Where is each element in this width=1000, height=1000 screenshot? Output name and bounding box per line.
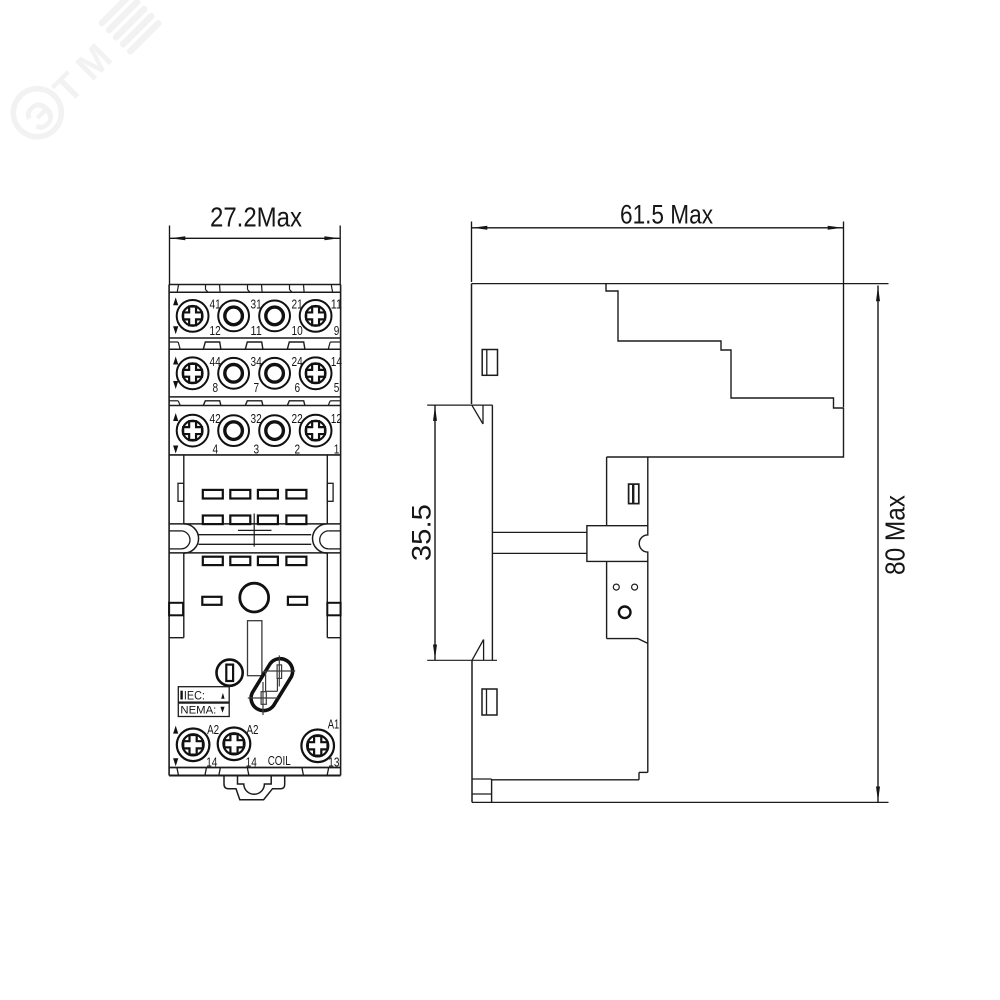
- svg-text:7: 7: [254, 380, 260, 395]
- svg-text:35.5: 35.5: [407, 504, 437, 561]
- svg-text:12: 12: [210, 323, 221, 338]
- svg-text:24: 24: [292, 354, 303, 369]
- svg-text:32: 32: [251, 411, 262, 426]
- svg-text:14: 14: [331, 354, 342, 369]
- svg-text:A1: A1: [328, 718, 340, 732]
- svg-text:8: 8: [213, 380, 219, 395]
- svg-text:42: 42: [210, 411, 221, 426]
- svg-text:10: 10: [292, 323, 303, 338]
- svg-text:A2: A2: [207, 723, 219, 737]
- svg-text:11: 11: [251, 323, 262, 338]
- svg-text:11: 11: [331, 297, 342, 312]
- svg-text:27.2Max: 27.2Max: [210, 202, 302, 233]
- svg-text:21: 21: [292, 297, 303, 312]
- svg-text:41: 41: [210, 297, 221, 312]
- svg-text:IEC:: IEC:: [184, 688, 205, 702]
- svg-text:3: 3: [254, 442, 260, 457]
- svg-text:13: 13: [328, 754, 339, 769]
- svg-text:A2: A2: [247, 723, 259, 737]
- svg-text:12: 12: [331, 411, 342, 426]
- svg-text:6: 6: [295, 380, 301, 395]
- svg-text:5: 5: [334, 380, 340, 395]
- svg-text:22: 22: [292, 411, 303, 426]
- svg-text:9: 9: [334, 323, 340, 338]
- svg-text:NEMA:: NEMA:: [180, 705, 216, 717]
- svg-text:4: 4: [213, 442, 219, 457]
- svg-text:1: 1: [334, 442, 340, 457]
- svg-text:14: 14: [206, 754, 217, 769]
- svg-text:COIL: COIL: [268, 754, 291, 768]
- svg-text:14: 14: [246, 754, 257, 769]
- svg-text:61.5 Max: 61.5 Max: [620, 200, 713, 230]
- svg-text:44: 44: [210, 354, 221, 369]
- svg-text:31: 31: [251, 297, 262, 312]
- svg-text:2: 2: [295, 442, 301, 457]
- svg-text:34: 34: [251, 354, 262, 369]
- svg-text:80 Max: 80 Max: [880, 495, 911, 575]
